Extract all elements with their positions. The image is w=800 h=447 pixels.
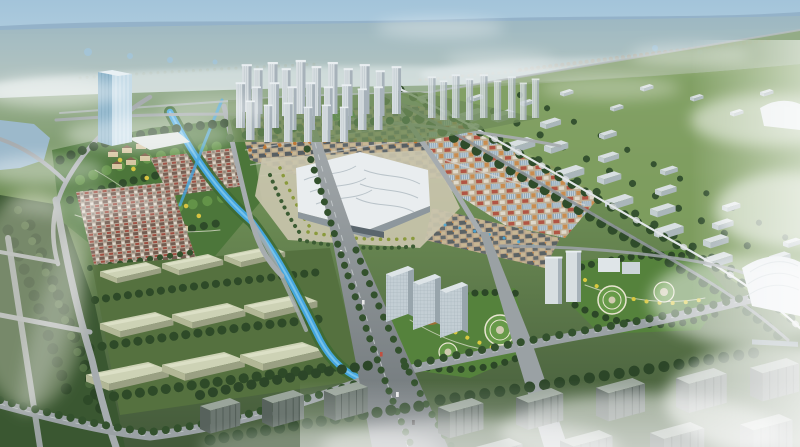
aerial-render-stage: Aerial master-plan rendering of a new ur… — [0, 0, 800, 447]
mist-bottom — [300, 380, 800, 447]
scene-render: Aerial master-plan rendering of a new ur… — [0, 0, 800, 447]
exhibition-center — [255, 150, 460, 248]
